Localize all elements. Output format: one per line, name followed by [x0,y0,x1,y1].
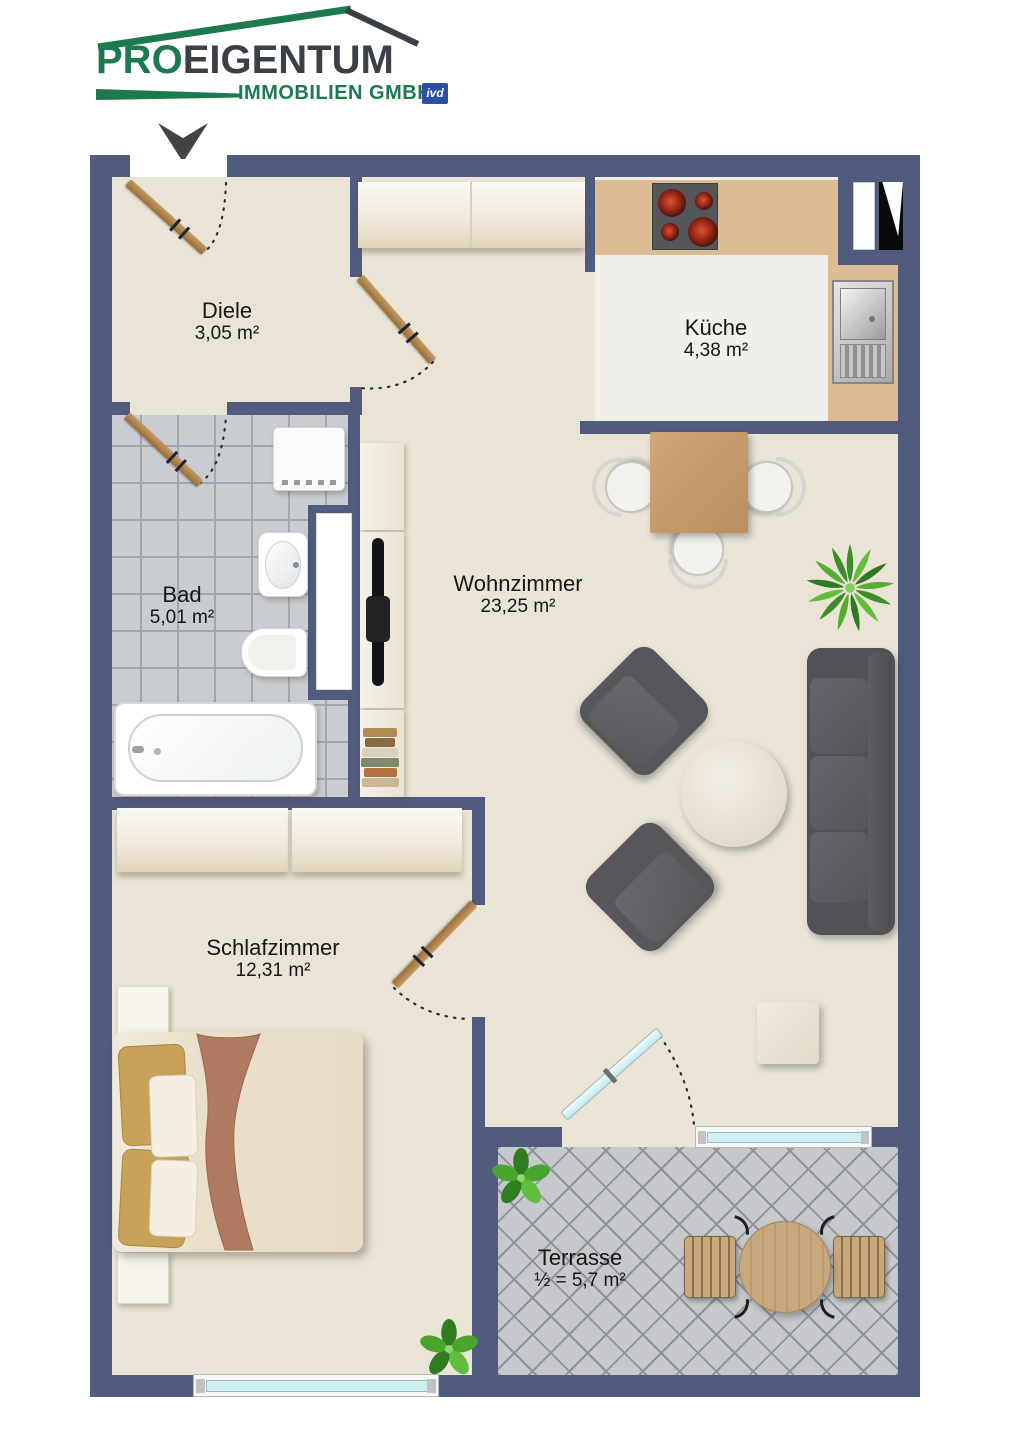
room-area: 4,38 m² [684,340,748,363]
side-table [757,1002,819,1064]
bedroom-plant [418,1318,480,1380]
logo-subtitle: IMMOBILIEN GMBH [238,82,432,105]
wall-terrace-top-right [870,1127,898,1147]
book [362,748,398,757]
window-cap [861,1131,869,1144]
book [362,778,399,787]
pillow [149,1159,199,1238]
sofa [807,648,895,935]
room-label-schlafzimmer: Schlafzimmer 12,31 m² [206,936,339,983]
wall-bedroom-living-upper [472,810,485,905]
sofa-backrest [868,652,892,931]
wall-top [227,155,920,177]
washing-machine [273,427,345,491]
terrace-chair [684,1236,736,1298]
wall-left [90,155,112,1397]
fridge-icon-wedge [879,182,903,250]
window-cap [698,1131,706,1144]
floor-plan: PROEIGENTUM IMMOBILIEN GMBH ivd [0,0,1018,1440]
sink-drain [293,562,299,568]
room-name: Schlafzimmer [206,936,339,960]
company-logo: PROEIGENTUM IMMOBILIEN GMBH ivd [68,4,458,154]
terrace-table [739,1221,831,1313]
bedroom-window-glass [206,1380,428,1392]
bathtub [114,702,317,796]
room-name: Bad [150,583,214,607]
nightstand [117,1252,169,1304]
bathroom-sink [258,532,308,597]
room-label-bad: Bad 5,01 m² [150,583,214,630]
room-area: 23,25 m² [453,596,582,619]
dining-table [650,432,748,533]
sofa-cushion [810,678,868,754]
sofa-cushion [810,756,868,830]
sink-drainer [840,344,886,378]
bed [113,1032,363,1252]
room-name: Küche [684,316,748,340]
window-cap [196,1379,205,1393]
room-label-wohnzimmer: Wohnzimmer 23,25 m² [453,572,582,619]
kitchen-tall-unit-block [838,177,898,265]
room-label-kueche: Küche 4,38 m² [684,316,748,363]
sink-drain [869,316,875,322]
room-name: Wohnzimmer [453,572,582,596]
burner [688,217,718,247]
room-label-terrasse: Terrasse ½ = 5,7 m² [534,1246,625,1293]
wall-right [898,155,920,1397]
wall-terrace-top-left [472,1127,562,1147]
wardrobe [117,808,288,872]
tall-cabinet [853,182,875,250]
room-label-diele: Diele 3,05 m² [195,299,259,346]
hall-sideboard [358,182,585,248]
nightstand [117,986,169,1038]
window-cap [427,1379,436,1393]
sofa-cushion [810,832,868,903]
bathtub-faucet [132,746,144,753]
burner [661,223,679,241]
room-area: ½ = 5,7 m² [534,1270,625,1293]
logo-eigentum: EIGENTUM [183,38,394,82]
room-name: Diele [195,299,259,323]
sideboard-divider [470,182,472,248]
room-area: 3,05 m² [195,323,259,346]
logo-pro: PRO [96,38,183,82]
wall-bath-top-left [112,402,130,415]
room-area: 5,01 m² [150,607,214,630]
coffee-table [681,741,787,847]
glass-partition [316,513,352,690]
book [361,758,399,767]
book [364,768,397,777]
bathtub-drain [154,748,161,755]
terrace-plant [490,1147,552,1209]
tv-lowboard-top [360,443,404,530]
tv-mount [366,596,390,642]
toilet-seat [248,635,296,670]
room-area: 12,31 m² [206,960,339,983]
chair-seat [741,461,793,513]
fridge-icon [879,182,903,250]
toilet [241,628,307,677]
sink-basin [840,288,886,340]
washing-machine-panel [282,480,336,485]
wall-bath-top [227,402,362,415]
book-stack [361,727,399,791]
ivd-badge: ivd [422,83,448,104]
burner [658,189,686,217]
houseplant [802,540,898,636]
wardrobe [292,808,462,872]
book [363,728,397,737]
terrace-chair [833,1236,885,1298]
kitchen-sink [832,280,894,384]
bedroom-window [193,1374,439,1397]
wall-kitchen-stub [585,177,595,272]
stove [652,183,718,250]
pillow [149,1074,199,1158]
room-name: Terrasse [534,1246,625,1270]
living-terrace-window [695,1126,872,1148]
book [365,738,395,747]
logo-wordmark: PROEIGENTUM [96,38,394,83]
burner [695,192,713,210]
living-terrace-window-glass [707,1132,862,1143]
